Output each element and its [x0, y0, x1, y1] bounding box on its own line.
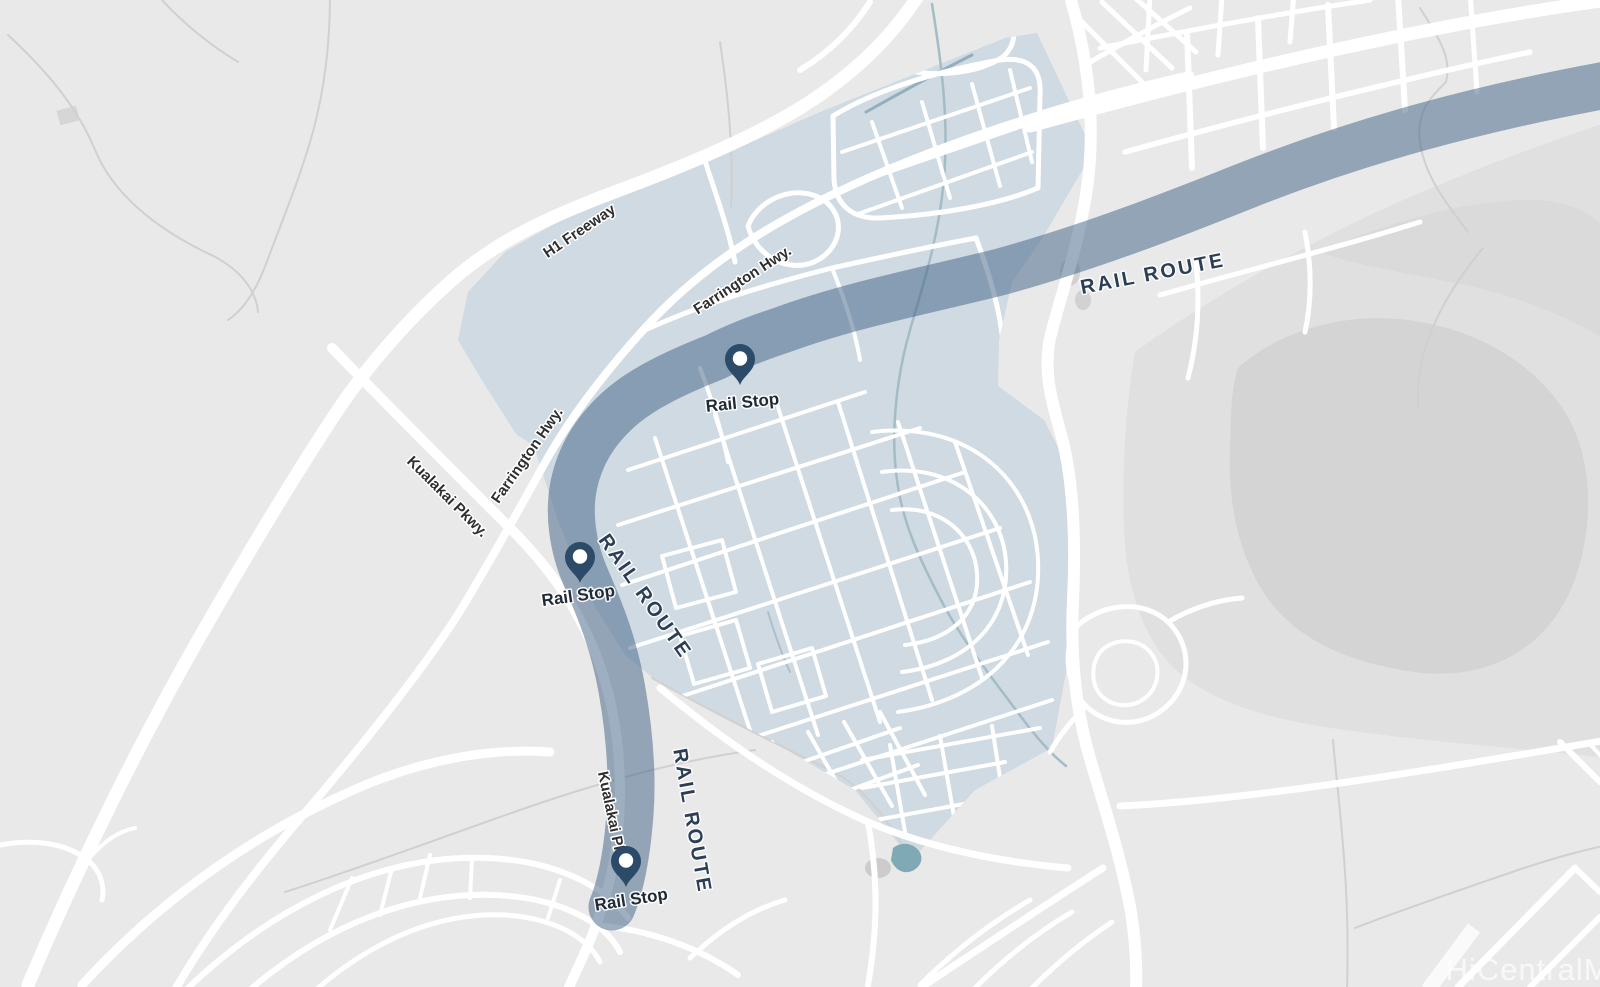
map-canvas[interactable]: H1 Freeway Farrington Hwy. Farrington Hw… [0, 0, 1600, 987]
watermark-label: HiCentralMLS [1446, 952, 1600, 987]
map-svg: H1 Freeway Farrington Hwy. Farrington Hw… [0, 0, 1600, 987]
